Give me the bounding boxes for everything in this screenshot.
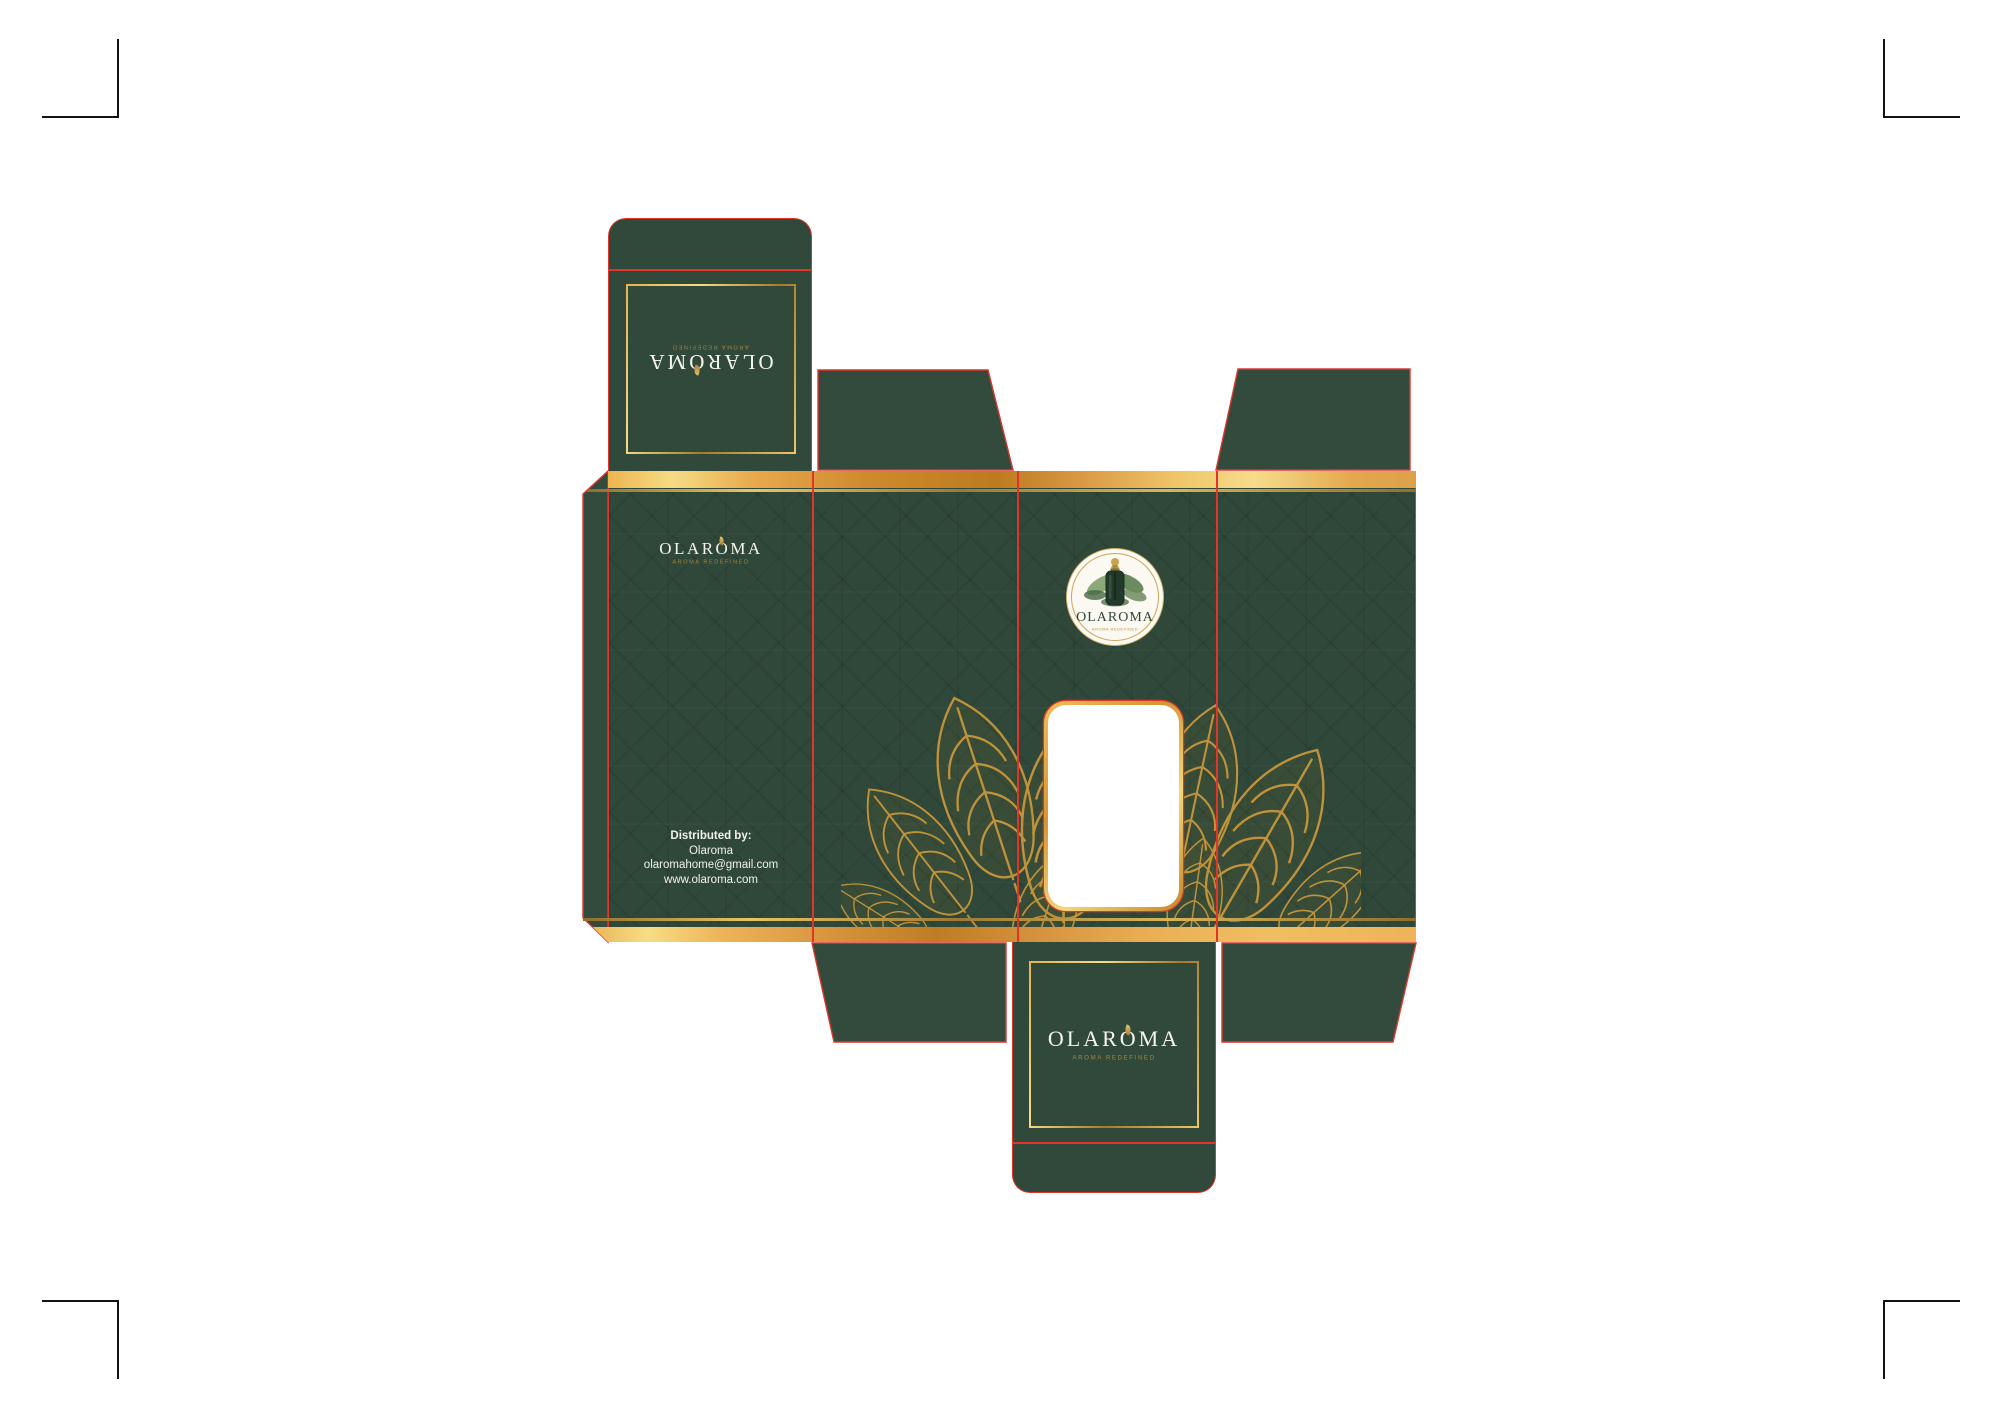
dust-flap-bottom-right [1222, 943, 1416, 1042]
distributor-website: www.olaroma.com [609, 873, 813, 888]
packaging-dieline-artboard: OLAROMA AROMA REDEFINED [0, 0, 2000, 1413]
brand-tagline: AROMA REDEFINED [648, 559, 774, 565]
badge-brand-tagline: AROMA REDEFINED [1091, 627, 1139, 632]
brand-wordmark-text: OLAROMA [659, 539, 762, 558]
gold-rule-top [587, 489, 1416, 492]
top-tuck-flap: OLAROMA AROMA REDEFINED [608, 218, 812, 471]
crop-mark-bottom-left [42, 1300, 119, 1379]
brand-wordmark: OLAROMA [659, 540, 762, 557]
fold-line-front-side [1216, 471, 1218, 942]
distributor-info-block: Distributed by: Olaroma olaromahome@gmai… [609, 829, 813, 887]
glue-flap [583, 471, 608, 942]
bottom-tuck-flap: OLAROMA AROMA REDEFINED [1012, 942, 1216, 1193]
top-flap-brand-lockup-reversed: OLAROMA AROMA REDEFINED [609, 341, 811, 372]
brand-tagline: AROMA REDEFINED [1051, 1055, 1176, 1061]
fold-line-side-front [1017, 471, 1019, 942]
dust-flap-top-left [818, 370, 1013, 470]
bottom-flap-brand-lockup: OLAROMA AROMA REDEFINED [1013, 1028, 1215, 1065]
dropper-bottle-icon [1075, 555, 1155, 611]
brand-badge: OLAROMA AROMA REDEFINED [1066, 548, 1164, 646]
main-panel-row: OLAROMA AROMA REDEFINED Distributed by: … [608, 471, 1416, 942]
distributed-by-label: Distributed by: [609, 829, 813, 844]
distributor-name: Olaroma [609, 844, 813, 859]
product-window-frame [1044, 701, 1183, 911]
brand-wordmark: OLAROMA [1048, 1028, 1180, 1050]
brand-wordmark-text: OLAROMA [646, 350, 773, 374]
crop-mark-bottom-right [1883, 1300, 1960, 1379]
brand-wordmark-text: OLAROMA [1048, 1026, 1180, 1051]
dust-flap-top-right [1216, 369, 1410, 470]
distributor-email: olaromahome@gmail.com [609, 858, 813, 873]
gold-foil-band-bottom [590, 927, 1416, 943]
brand-tagline: AROMA REDEFINED [647, 344, 772, 350]
product-window-cutout [1048, 705, 1179, 907]
bottom-flap-fold-line [1013, 1142, 1215, 1144]
crop-mark-top-left [42, 39, 119, 118]
badge-brand-wordmark: OLAROMA [1067, 610, 1163, 626]
gold-rule-bottom [583, 918, 1416, 921]
dust-flap-bottom-left [812, 943, 1006, 1042]
fold-line-back-side [812, 471, 814, 942]
gold-foil-band-top [608, 471, 1416, 488]
back-panel-brand-lockup: OLAROMA AROMA REDEFINED [609, 540, 813, 568]
brand-wordmark: OLAROMA [646, 351, 773, 372]
top-flap-fold-line [609, 269, 811, 271]
crop-mark-top-right [1883, 39, 1960, 118]
